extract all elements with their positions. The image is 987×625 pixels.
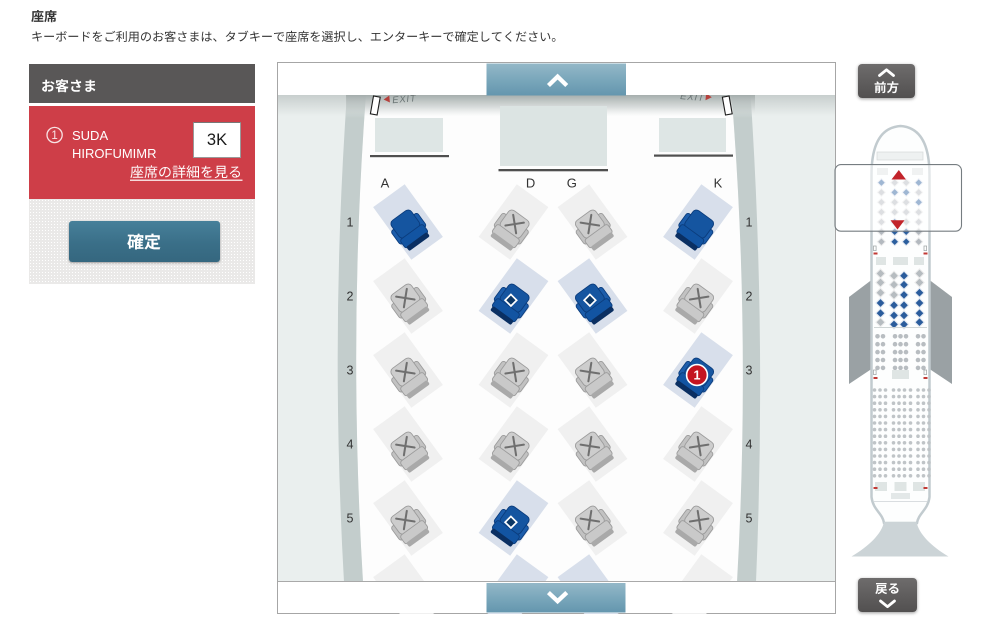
svg-text:1: 1 [694, 369, 701, 383]
svg-text:1: 1 [51, 130, 57, 142]
svg-text:2: 2 [347, 290, 354, 304]
svg-text:4: 4 [746, 438, 753, 452]
svg-text:K: K [714, 176, 723, 191]
svg-text:2: 2 [746, 290, 753, 304]
svg-text:G: G [567, 176, 577, 191]
svg-text:A: A [381, 176, 390, 191]
svg-text:1: 1 [746, 216, 753, 230]
svg-text:EXIT: EXIT [392, 93, 418, 106]
svg-text:5: 5 [746, 512, 753, 526]
svg-text:1: 1 [347, 216, 354, 230]
svg-text:4: 4 [347, 438, 354, 452]
svg-text:3: 3 [347, 364, 354, 378]
svg-text:3: 3 [746, 364, 753, 378]
svg-text:D: D [526, 176, 535, 191]
svg-text:5: 5 [347, 512, 354, 526]
